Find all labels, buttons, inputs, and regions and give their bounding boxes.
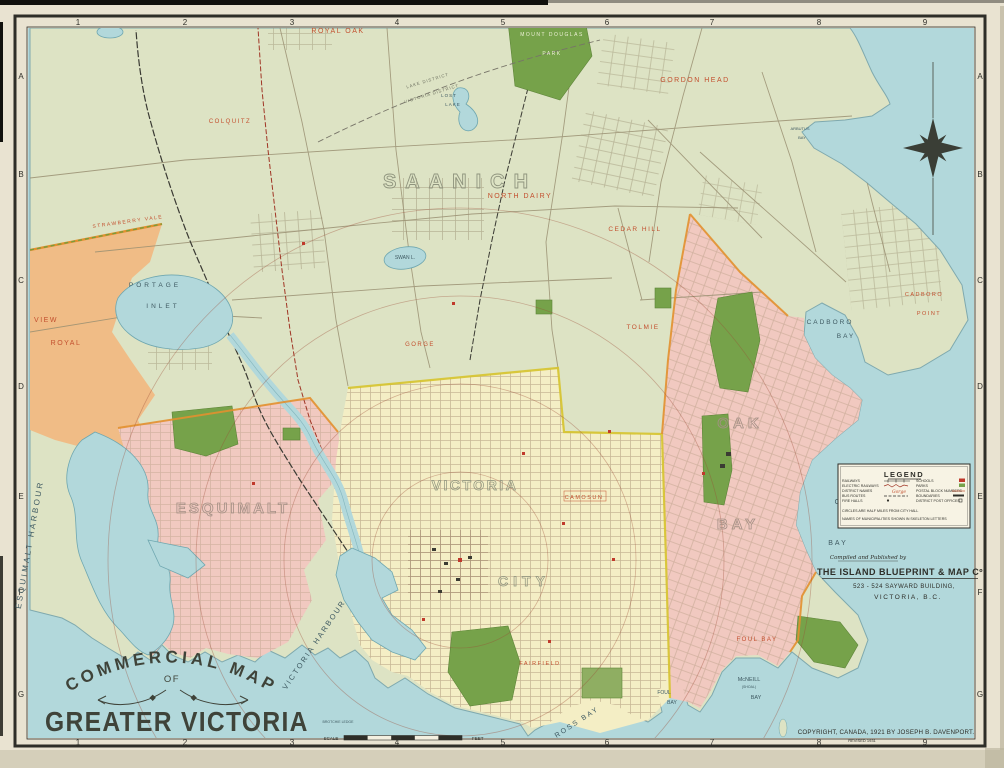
label-mount-douglas: MOUNT DOUGLAS	[520, 32, 584, 38]
park-small	[655, 288, 671, 308]
grid-row: A	[977, 72, 983, 81]
label-tolmie: TOLMIE	[626, 324, 659, 331]
label-swan-lake: SWAN L.	[395, 255, 415, 261]
grid-row: E	[977, 492, 982, 501]
label-north-dairy: NORTH DAIRY	[488, 193, 552, 200]
label-royal: ROYAL	[51, 340, 82, 347]
label-fairfield: FAIRFIELD	[519, 661, 560, 667]
label-cedar-hill: CEDAR HILL	[608, 226, 661, 233]
label-gorge: GORGE	[405, 342, 435, 348]
label-victoria: VICTORIA	[432, 477, 519, 493]
label-foul-bay: BAY	[667, 700, 677, 706]
publisher-name: THE ISLAND BLUEPRINT & MAP Cº	[817, 567, 983, 577]
grid-col: 9	[923, 738, 928, 747]
grid-col: 5	[501, 18, 506, 27]
label-cadboro-bay-1: CADBORO	[807, 319, 854, 326]
publisher-address: 523 - 524 SAYWARD BUILDING,	[853, 584, 955, 590]
legend-park-swatch	[959, 484, 965, 488]
grid-row: E	[18, 492, 23, 501]
label-saanich: SAANICH	[383, 171, 537, 193]
scale-unit: FEET	[472, 736, 484, 741]
legend-item-post-offices: DISTRICT POST OFFICES	[916, 499, 960, 503]
grid-col: 2	[183, 18, 188, 27]
grid-row: G	[977, 690, 983, 699]
label-mcneill: McNEILL	[738, 677, 761, 683]
grid-row: F	[978, 588, 983, 597]
label-city: CITY	[498, 573, 550, 589]
legend-district-sample: Gorge	[892, 489, 906, 495]
label-royal-oak: ROYAL OAK	[311, 28, 364, 35]
grid-col: 8	[817, 738, 822, 747]
grid-col: 5	[501, 738, 506, 747]
grid-col: 6	[605, 738, 610, 747]
legend-school-swatch	[959, 479, 965, 483]
publisher-city: VICTORIA, B.C.	[874, 594, 942, 601]
copyright-revised: REVISED 1931	[848, 738, 876, 743]
label-cadboro: CADBORO	[905, 292, 943, 298]
label-esquimalt: ESQUIMALT	[176, 500, 290, 517]
title-of: OF	[164, 674, 180, 685]
grid-col: 3	[290, 738, 295, 747]
publisher-compiled-by: Compiled and Published by	[830, 555, 907, 561]
label-arbutus: ARBUTUS	[790, 126, 809, 131]
legend-note-skeleton: NAMES OF MUNICIPALITIES SHOWN IN SKELETO…	[842, 517, 947, 521]
legend-title: LEGEND	[884, 470, 924, 479]
grid-col: 1	[76, 738, 81, 747]
label-cadboro-bay-2: BAY	[837, 333, 856, 340]
legend-item-parks: PARKS	[916, 484, 929, 488]
label-camosun: CAMOSUN	[565, 495, 604, 501]
grid-row: D	[977, 382, 983, 391]
label-mcneill-bay: BAY	[751, 695, 762, 701]
grid-row: D	[18, 382, 24, 391]
cemetery-ross-bay	[582, 668, 622, 698]
grid-row: A	[18, 72, 24, 81]
grid-col: 7	[710, 18, 715, 27]
map-photo: 1 2 3 4 5 6 7 8 9 1 2 3 4 5 6 7 8 9 A B …	[0, 0, 1004, 768]
copyright-line: COPYRIGHT, CANADA, 1921 BY JOSEPH B. DAV…	[798, 729, 975, 736]
label-foul: FOUL	[657, 690, 671, 696]
legend-item-boundaries: BOUNDARIES	[916, 494, 940, 498]
label-view: VIEW	[34, 317, 58, 324]
scale-label: SCALE	[324, 736, 339, 741]
legend-item-district-names: DISTRICT NAMES	[842, 489, 873, 493]
island-trial	[779, 719, 787, 737]
label-portage: PORTAGE	[129, 282, 181, 289]
label-colquitz: COLQUITZ	[209, 119, 251, 125]
label-lake: LAKE	[445, 102, 461, 107]
map-canvas: 1 2 3 4 5 6 7 8 9 1 2 3 4 5 6 7 8 9 A B …	[0, 0, 1004, 768]
label-arbutus-bay: BAY	[798, 135, 806, 140]
label-foul-bay-district: FOUL BAY	[736, 637, 777, 643]
legend-note-circles: CIRCLES ARE HALF MILES FROM CITY HALL	[842, 509, 918, 513]
grid-col: 7	[710, 738, 715, 747]
scale-bar-segments	[344, 736, 462, 741]
legend-item-schools: SCHOOLS	[916, 479, 934, 483]
grid-col: 3	[290, 18, 295, 27]
grid-row: C	[977, 276, 983, 285]
label-inlet: INLET	[146, 303, 179, 310]
grid-col: 1	[76, 18, 81, 27]
legend-item-railways: RAILWAYS	[842, 479, 861, 483]
scale-bar: SCALE FEET	[324, 736, 484, 742]
label-lost: LOST	[441, 93, 457, 98]
grid-row: B	[18, 170, 23, 179]
grid-col: 8	[817, 18, 822, 27]
label-bay: BAY	[717, 516, 759, 533]
legend-item-electric-railways: ELECTRIC RAILWAYS	[842, 484, 879, 488]
label-gordon-head: GORDON HEAD	[660, 77, 729, 84]
legend: LEGEND RAILWAYS ELECTRIC RAILWAYS DISTRI…	[838, 464, 970, 528]
title-main: GREATER VICTORIA	[45, 706, 309, 738]
legend-item-bus-routes: BUS ROUTES	[842, 494, 866, 498]
label-cadboro-point: POINT	[917, 311, 941, 317]
label-oak: OAK	[717, 415, 762, 432]
grid-col: 6	[605, 18, 610, 27]
legend-boundary-swatch	[953, 495, 964, 497]
grid-row: C	[18, 276, 24, 285]
grid-row: B	[977, 170, 982, 179]
legend-fire-hall-symbol	[887, 499, 889, 501]
label-shoal: (SHOAL)	[742, 685, 756, 689]
label-oak-bay-water-2: BAY	[828, 540, 848, 547]
label-mtdouglas-park: PARK	[542, 51, 561, 57]
park-small	[283, 428, 300, 440]
grid-col: 9	[923, 18, 928, 27]
grid-col: 4	[395, 18, 400, 27]
grid-row: G	[18, 690, 24, 699]
grid-col: 2	[183, 738, 188, 747]
label-brotchie-ledge: BROTCHIE LEDGE	[323, 720, 355, 724]
city-hall-marker	[458, 558, 462, 562]
legend-item-fire-halls: FIRE HALLS	[842, 499, 863, 503]
